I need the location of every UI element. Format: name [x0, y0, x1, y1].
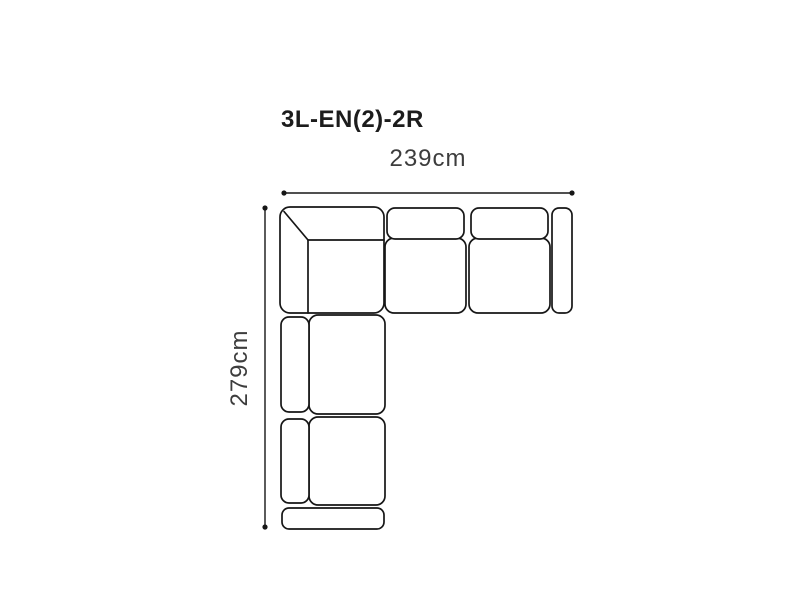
width-dimension-label: 239cm — [389, 145, 466, 172]
top-seat-2-backrest — [471, 208, 548, 239]
left-seat-2-cushion — [309, 417, 385, 505]
height-dimension-endpoint-top — [262, 205, 267, 210]
width-dimension-line — [281, 190, 574, 195]
left-seat-1-cushion — [309, 315, 385, 414]
diagram-title: 3L-EN(2)-2R — [281, 106, 424, 133]
height-dimension-line — [262, 205, 267, 529]
width-dimension-endpoint-left — [281, 190, 286, 195]
height-dimension-label: 279cm — [226, 329, 253, 406]
bottom-arm — [282, 508, 384, 529]
sofa-outline — [280, 207, 572, 529]
top-seat-1-cushion — [385, 238, 466, 313]
height-dimension-endpoint-bottom — [262, 524, 267, 529]
sofa-dimension-diagram: 3L-EN(2)-2R 239cm 279cm — [0, 0, 800, 600]
width-dimension-endpoint-right — [569, 190, 574, 195]
left-seat-1-backrest — [281, 317, 309, 412]
top-seat-2-cushion — [469, 238, 550, 313]
left-seat-2-backrest — [281, 419, 309, 503]
right-arm — [552, 208, 572, 313]
corner-section — [280, 207, 384, 313]
top-seat-1-backrest — [387, 208, 464, 239]
diagram-canvas: 3L-EN(2)-2R 239cm 279cm — [0, 0, 800, 600]
